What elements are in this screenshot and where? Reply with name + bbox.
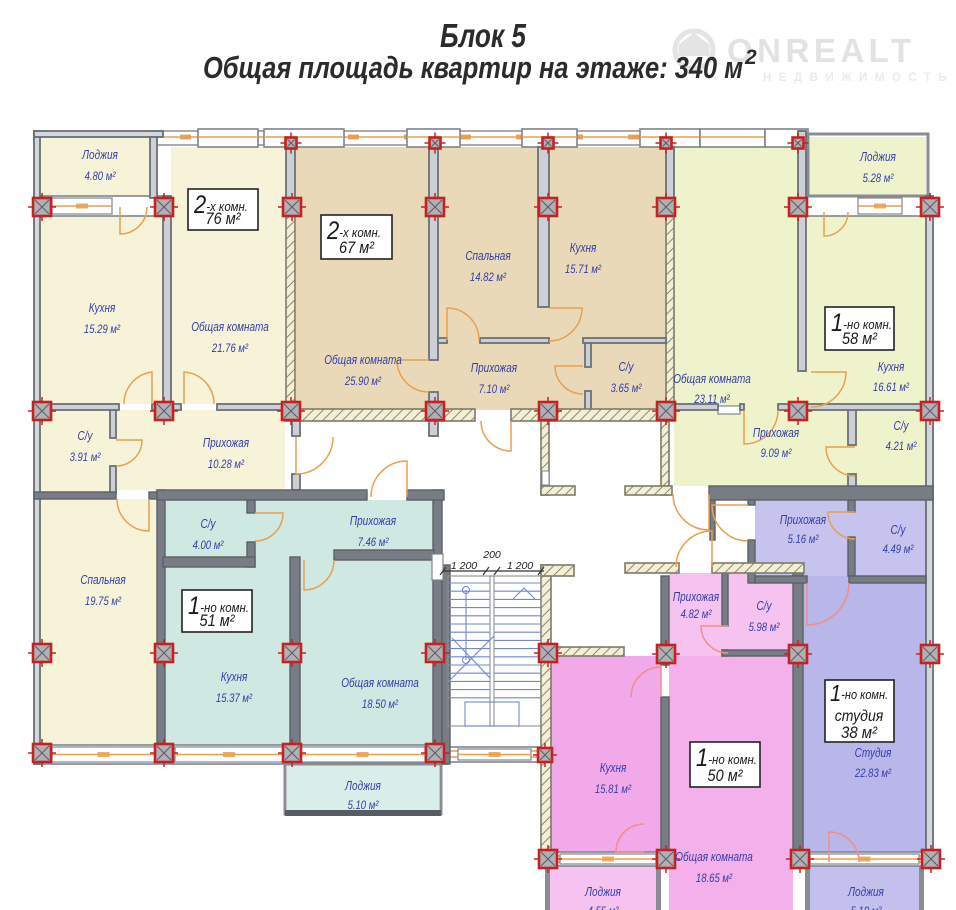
svg-text:4.00 м²: 4.00 м² (193, 539, 224, 552)
svg-text:15.71 м²: 15.71 м² (565, 263, 601, 276)
svg-text:4.55 м²: 4.55 м² (588, 905, 619, 910)
svg-text:Лоджия: Лоджия (81, 149, 118, 162)
svg-text:3.65 м²: 3.65 м² (611, 382, 642, 395)
svg-text:51 м²: 51 м² (200, 612, 236, 630)
svg-text:2: 2 (744, 46, 757, 69)
svg-text:23.11 м²: 23.11 м² (693, 393, 730, 406)
svg-text:С/у: С/у (619, 361, 635, 374)
svg-text:7.10 м²: 7.10 м² (479, 383, 510, 396)
svg-text:5.10 м²: 5.10 м² (348, 799, 379, 812)
svg-text:Блок 5: Блок 5 (440, 17, 527, 54)
svg-text:Общая площадь квартир на этаже: Общая площадь квартир на этаже: 340 м (203, 50, 743, 85)
svg-text:Спальная: Спальная (80, 574, 125, 587)
svg-text:15.37 м²: 15.37 м² (216, 692, 252, 705)
svg-text:Прихожая: Прихожая (753, 427, 799, 440)
svg-text:Лоджия: Лоджия (584, 886, 621, 899)
svg-text:9.09 м²: 9.09 м² (761, 447, 792, 460)
svg-text:16.61 м²: 16.61 м² (873, 381, 909, 394)
svg-text:5.18 м²: 5.18 м² (851, 905, 882, 910)
svg-text:22.83 м²: 22.83 м² (854, 767, 891, 780)
svg-text:4.80 м²: 4.80 м² (85, 170, 116, 183)
svg-text:5.98 м²: 5.98 м² (749, 621, 780, 634)
svg-text:3.91 м²: 3.91 м² (70, 451, 101, 464)
svg-text:Общая комната: Общая комната (341, 677, 419, 690)
svg-text:21.76 м²: 21.76 м² (211, 342, 248, 355)
svg-text:Общая комната: Общая комната (675, 851, 753, 864)
svg-text:С/у: С/у (757, 600, 773, 613)
svg-text:25.90 м²: 25.90 м² (344, 375, 381, 388)
svg-text:Прихожая: Прихожая (780, 514, 826, 527)
svg-text:Студия: Студия (855, 747, 892, 760)
svg-text:4.21 м²: 4.21 м² (886, 440, 917, 453)
svg-text:Общая комната: Общая комната (324, 354, 402, 367)
svg-text:4.82 м²: 4.82 м² (681, 608, 712, 621)
svg-text:С/у: С/у (201, 518, 217, 531)
svg-text:58 м²: 58 м² (842, 330, 878, 348)
svg-text:18.65 м²: 18.65 м² (696, 872, 732, 885)
svg-text:Прихожая: Прихожая (203, 437, 249, 450)
svg-text:10.28 м²: 10.28 м² (208, 458, 244, 471)
svg-text:Кухня: Кухня (600, 762, 627, 775)
svg-text:76 м²: 76 м² (206, 210, 242, 228)
svg-text:38 м²: 38 м² (841, 724, 878, 742)
svg-text:Кухня: Кухня (89, 302, 116, 315)
svg-text:С/у: С/у (894, 420, 910, 433)
svg-text:Кухня: Кухня (570, 242, 597, 255)
svg-text:С/у: С/у (78, 430, 94, 443)
svg-text:студия: студия (835, 707, 884, 725)
svg-text:Спальная: Спальная (465, 250, 510, 263)
svg-text:Прихожая: Прихожая (350, 515, 396, 528)
svg-text:Прихожая: Прихожая (471, 362, 517, 375)
svg-text:Кухня: Кухня (878, 361, 905, 374)
svg-text:Лоджия: Лоджия (344, 780, 381, 793)
svg-text:1 200: 1 200 (451, 560, 477, 572)
svg-text:19.75 м²: 19.75 м² (85, 595, 121, 608)
svg-text:50 м²: 50 м² (708, 767, 744, 785)
svg-text:Кухня: Кухня (221, 671, 248, 684)
svg-text:15.81 м²: 15.81 м² (595, 783, 631, 796)
svg-text:Прихожая: Прихожая (673, 591, 719, 604)
svg-text:Общая комната: Общая комната (191, 321, 269, 334)
svg-text:67 м²: 67 м² (339, 239, 375, 257)
svg-text:Лоджия: Лоджия (859, 151, 896, 164)
svg-text:4.49 м²: 4.49 м² (883, 543, 914, 556)
svg-text:18.50 м²: 18.50 м² (362, 698, 398, 711)
svg-text:14.82 м²: 14.82 м² (470, 271, 506, 284)
svg-text:НЕДВИЖИМОСТЬ: НЕДВИЖИМОСТЬ (763, 72, 954, 84)
svg-text:5.28 м²: 5.28 м² (863, 172, 894, 185)
svg-text:Лоджия: Лоджия (847, 886, 884, 899)
svg-text:5.16 м²: 5.16 м² (788, 533, 819, 546)
svg-text:С/у: С/у (891, 524, 907, 537)
svg-text:Общая комната: Общая комната (673, 373, 751, 386)
svg-text:200: 200 (482, 549, 501, 561)
svg-text:15.29 м²: 15.29 м² (84, 323, 120, 336)
svg-text:1 200: 1 200 (507, 560, 533, 572)
svg-text:7.46 м²: 7.46 м² (358, 536, 389, 549)
